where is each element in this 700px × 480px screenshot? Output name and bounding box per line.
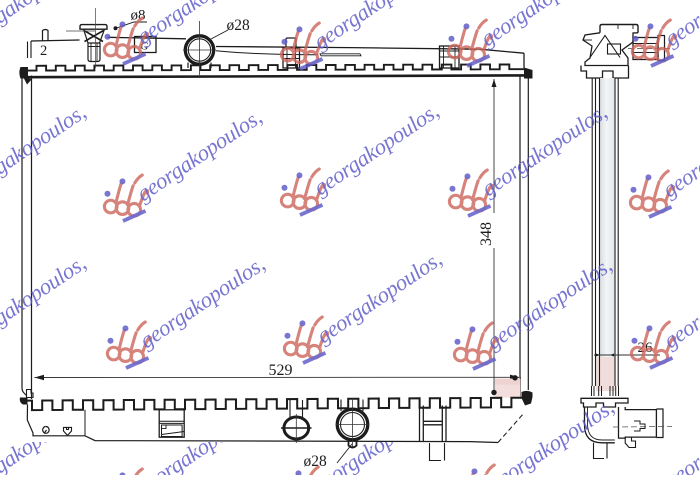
svg-text:529: 529 — [269, 362, 293, 379]
svg-text:ø28: ø28 — [227, 17, 251, 34]
svg-text:348: 348 — [478, 222, 495, 246]
svg-text:2: 2 — [40, 43, 47, 59]
